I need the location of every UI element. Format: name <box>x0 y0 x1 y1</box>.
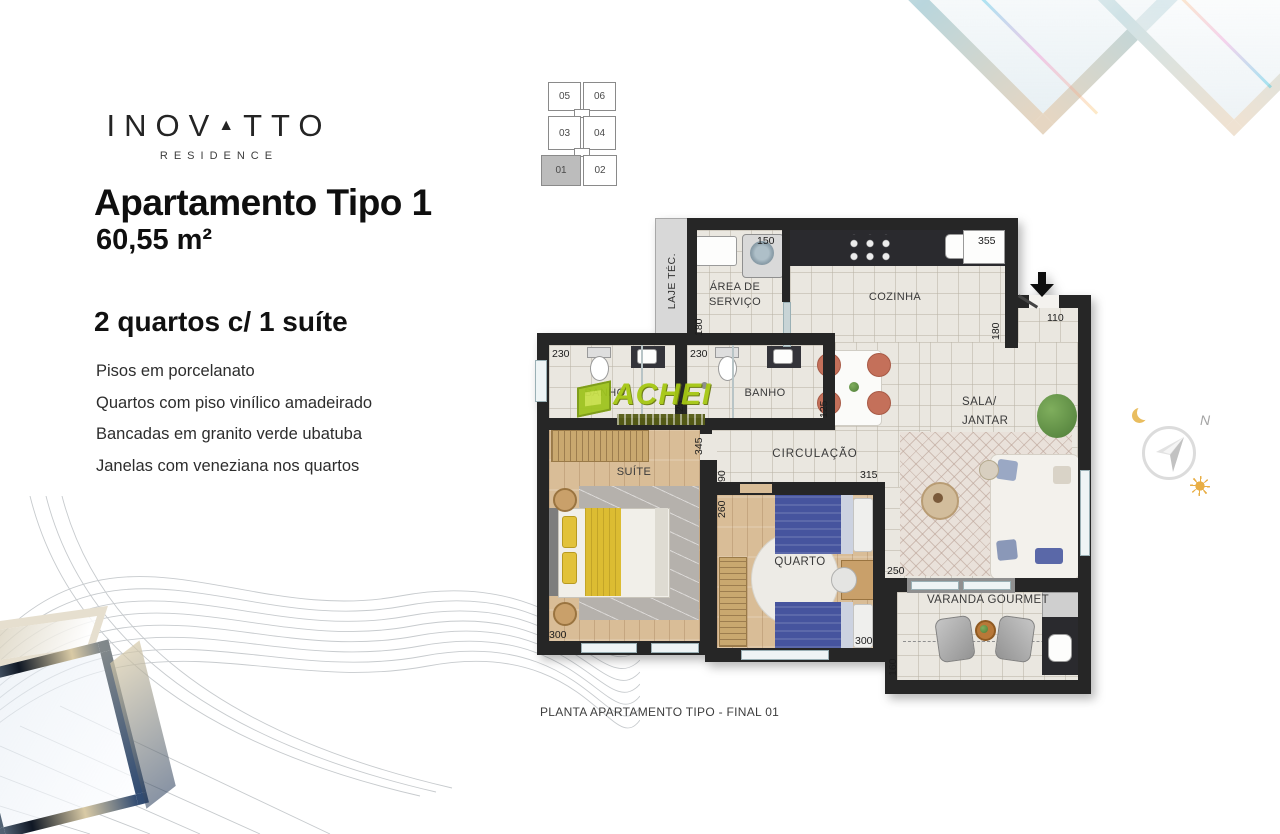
compass-needle-icon <box>1142 426 1196 480</box>
brand-logo-right: TTO <box>243 108 331 143</box>
brand-subtitle: RESIDENCE <box>94 150 344 162</box>
laundry-tank <box>695 236 737 266</box>
key-plan-unit-04: 04 <box>583 116 616 150</box>
single-bed-pillow <box>853 498 873 552</box>
sliding-door-glass <box>911 581 959 590</box>
room-label-circulacao: CIRCULAÇÃO <box>741 447 889 462</box>
wall <box>885 578 909 592</box>
floor-plan: LAJE TÉC. <box>535 210 1100 692</box>
wall <box>705 482 885 495</box>
bedroom-door-opening <box>740 484 772 493</box>
dim-entry-top: 110 <box>1047 312 1064 324</box>
moon-icon <box>1132 408 1147 423</box>
key-plan: 05 06 03 04 01 02 <box>536 76 628 188</box>
brand-logo: INOV▲TTO <box>94 108 344 144</box>
dim-servico-left: 180 <box>693 318 705 336</box>
stove-icon <box>842 234 890 261</box>
feature-item: Quartos com piso vinílico amadeirado <box>96 388 372 420</box>
suite-blanket <box>585 508 621 596</box>
shower-glass <box>732 345 734 418</box>
balcony-chair <box>994 615 1036 664</box>
dim-cozinha-top: 355 <box>978 235 996 247</box>
key-plan-unit-02: 02 <box>583 155 617 186</box>
dim-quarto-bottom: 300 <box>855 635 873 647</box>
nightstand <box>553 602 577 626</box>
single-bed-blanket <box>775 602 843 648</box>
wall <box>1005 218 1018 348</box>
key-plan-unit-06: 06 <box>583 82 616 111</box>
dim-suite-bottom: 300 <box>549 629 567 641</box>
dining-chair <box>867 353 891 377</box>
feature-item: Bancadas em granito verde ubatuba <box>96 419 372 451</box>
room-label-sala: SALA/ JANTAR <box>962 393 1034 431</box>
dim-quarto-top: 315 <box>860 469 878 481</box>
page-title: Apartamento Tipo 1 <box>94 182 432 224</box>
wall <box>873 482 885 662</box>
feature-item: Pisos em porcelanato <box>96 356 372 388</box>
wall <box>782 230 790 302</box>
dim-servico-top: 150 <box>757 235 775 247</box>
dim-hall: 345 <box>693 437 705 455</box>
dim-banho2-right: 125 <box>818 400 830 418</box>
features-list: Pisos em porcelanato Quartos com piso vi… <box>96 356 372 482</box>
table-plant-icon <box>849 382 859 392</box>
wall <box>1013 578 1091 592</box>
wall <box>688 218 1018 230</box>
bath-sink <box>773 349 793 364</box>
balcony-sink <box>1048 634 1072 662</box>
single-bed-sheet <box>841 602 853 648</box>
dim-cozinha-right: 180 <box>990 322 1002 340</box>
bath-sink <box>637 349 657 364</box>
dim-banho1-top: 230 <box>552 348 570 360</box>
sofa-throw <box>1035 548 1063 564</box>
window <box>1080 470 1090 556</box>
dim-sala-bottom: 250 <box>887 565 905 577</box>
apartment-area: 60,55 m² <box>96 224 212 257</box>
balcony-chair <box>934 615 976 664</box>
brand-logo-left: INOV <box>106 108 218 143</box>
dining-chair <box>867 391 891 415</box>
page: INOV▲TTO RESIDENCE Apartamento Tipo 1 60… <box>0 0 1280 834</box>
single-bed-blanket <box>775 494 843 554</box>
key-plan-unit-01-highlighted: 01 <box>541 155 581 186</box>
dim-banho2-top: 230 <box>690 348 708 360</box>
nightstand <box>553 488 577 512</box>
sofa-cushion <box>996 539 1018 561</box>
suite-bed-headboard <box>549 508 558 596</box>
room-label-cozinha: COZINHA <box>853 290 937 305</box>
side-table <box>979 460 999 480</box>
room-label-quarto: QUARTO <box>761 555 839 570</box>
key-plan-unit-03: 03 <box>548 116 581 150</box>
window <box>535 360 547 402</box>
balcony-plant-icon <box>980 625 988 633</box>
achei-watermark-text: ACHEI <box>613 378 711 412</box>
desk-chair <box>831 567 857 593</box>
suite-bed-foot-fold <box>655 508 668 596</box>
technical-slab: LAJE TÉC. <box>655 218 689 345</box>
plan-caption: PLANTA APARTAMENTO TIPO - FINAL 01 <box>540 705 779 719</box>
features-headline: 2 quartos c/ 1 suíte <box>94 306 348 338</box>
living-plant-icon <box>1037 394 1077 438</box>
suite-pillow <box>562 516 577 548</box>
achei-watermark-banner <box>617 414 705 425</box>
dim-quarto-left: 260 <box>716 500 728 518</box>
room-label-suite: SUÍTE <box>599 465 669 480</box>
window <box>581 643 637 653</box>
sun-icon <box>1190 476 1210 496</box>
dim-door: 90 <box>716 470 728 482</box>
sofa-cushion <box>996 459 1019 482</box>
sofa-cushion <box>1053 466 1071 484</box>
key-plan-unit-05: 05 <box>548 82 581 111</box>
room-label-banho2: BANHO <box>727 386 803 401</box>
toilet-icon <box>718 356 737 381</box>
dim-varanda-left: 160 <box>887 658 899 676</box>
logo-triangle-icon: ▲ <box>218 117 243 134</box>
compass-north-label: N <box>1200 412 1210 428</box>
compass: N <box>1128 404 1228 504</box>
wall <box>885 680 1091 694</box>
suite-pillow <box>562 552 577 584</box>
achei-cube-icon <box>577 380 611 417</box>
sliding-door-glass <box>963 581 1011 590</box>
window <box>741 650 829 660</box>
room-label-servico: ÁREA DE SERVIÇO <box>693 280 777 310</box>
bedroom-wardrobe <box>719 557 747 647</box>
window <box>651 643 699 653</box>
room-label-varanda: VARANDA GOURMET <box>921 593 1055 608</box>
feature-item: Janelas com veneziana nos quartos <box>96 451 372 483</box>
wall <box>885 592 897 694</box>
pet-icon <box>933 493 943 503</box>
achei-watermark: ACHEI <box>577 376 717 440</box>
room-label-laje: LAJE TÉC. <box>666 253 678 309</box>
single-bed-sheet <box>841 494 853 554</box>
